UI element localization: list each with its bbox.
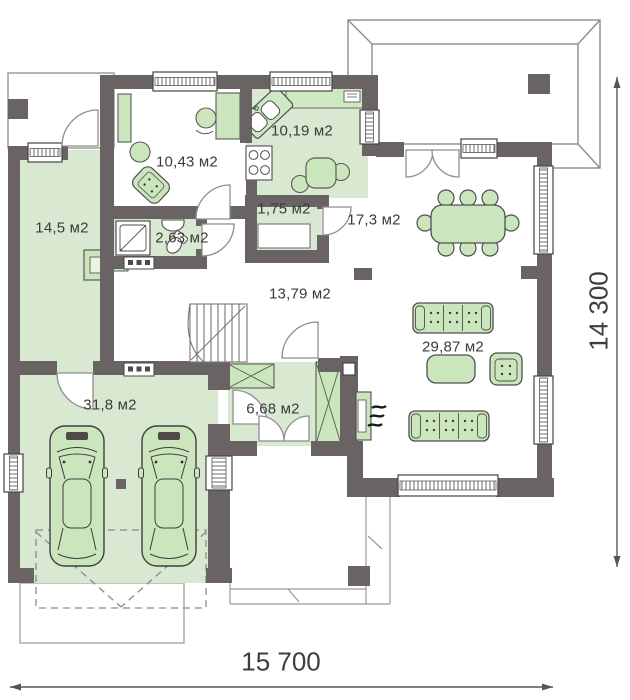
- window-icon: [398, 475, 498, 496]
- porch-column-icon: [348, 566, 370, 586]
- vent-icon: [124, 363, 154, 376]
- garage-apron-icon: [20, 583, 184, 643]
- window-icon: [461, 139, 497, 158]
- cabinet-icon: [216, 93, 240, 139]
- room-label-boiler-room: 14,5 м2: [35, 220, 88, 237]
- sofa-icon: [413, 303, 493, 333]
- room-label-hall: 13,79 м2: [269, 286, 331, 303]
- closet-x-icon: [316, 362, 341, 444]
- room-label-dining: 17,3 м2: [347, 212, 400, 229]
- shelf-icon: [258, 224, 310, 248]
- window-icon: [4, 454, 23, 492]
- room-label-kitchen: 10,19 м2: [271, 123, 333, 140]
- microwave-icon: [344, 91, 360, 102]
- wardrobe-icon: [118, 94, 131, 142]
- door-icon: [196, 185, 230, 219]
- stool-icon: [130, 142, 150, 162]
- side-table-icon: [196, 108, 216, 128]
- room-label-bathroom: 2,63 м2: [155, 230, 208, 247]
- dimension-height-label: 14 300: [584, 271, 615, 351]
- floor-plan-canvas: [0, 0, 630, 700]
- chimney-icon: [528, 74, 550, 94]
- door-icon: [282, 322, 318, 358]
- wall-stub-icon: [354, 268, 372, 280]
- window-icon: [360, 110, 379, 144]
- column-icon: [116, 479, 126, 489]
- wall-stub-icon: [521, 266, 537, 279]
- coffee-table-icon: [427, 355, 475, 383]
- window-icon: [206, 456, 232, 490]
- door-icon: [62, 110, 98, 146]
- car-icon: [139, 426, 200, 566]
- porch-pier-icon: [8, 99, 28, 119]
- room-label-living-room: 29,87 м2: [422, 339, 484, 356]
- window-icon: [534, 376, 553, 444]
- armchair-icon: [490, 353, 522, 385]
- window-icon: [534, 166, 553, 254]
- window-icon: [270, 72, 332, 91]
- vent-icon: [124, 257, 154, 269]
- floor-plan-screenshot: 14,5 м2 10,43 м2 10,19 м2 1,75 м2 2,63 м…: [0, 0, 630, 700]
- room-label-garage: 31,8 м2: [83, 397, 136, 414]
- entrance-porch-icon: [230, 497, 390, 604]
- shower-icon: [116, 221, 150, 255]
- car-icon: [47, 426, 108, 566]
- dimension-width-label: 15 700: [241, 647, 321, 678]
- sofa-icon: [409, 411, 489, 441]
- room-label-mudroom: 10,43 м2: [156, 154, 218, 171]
- room-label-pantry: 1,75 м2: [257, 201, 310, 218]
- room-label-vestibule: 6,68 м2: [246, 401, 299, 418]
- stove-icon: [246, 146, 272, 180]
- chair-back-icon: [196, 130, 213, 134]
- window-icon: [28, 143, 62, 162]
- dimension-line-bottom: [10, 684, 553, 691]
- wardrobe-x-icon: [228, 364, 274, 388]
- dimension-line-right: [614, 77, 621, 567]
- dining-table-icon: [431, 205, 505, 243]
- window-icon: [153, 72, 217, 91]
- stairs-icon: [188, 304, 247, 362]
